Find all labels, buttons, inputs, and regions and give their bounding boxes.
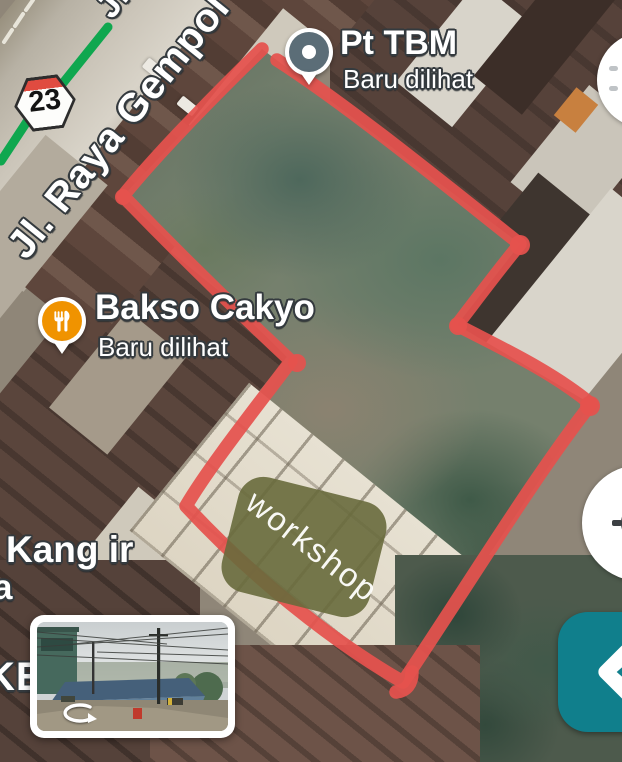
poi-subtitle: Baru dilihat bbox=[343, 66, 473, 93]
map-canvas[interactable]: workshop Jl. Jl. Raya Gempol 23 Pt TBM B… bbox=[0, 0, 622, 762]
poi-subtitle: Baru dilihat bbox=[98, 334, 228, 361]
place-label-kang-ir[interactable]: Kang ir bbox=[6, 531, 133, 570]
directions-button[interactable] bbox=[558, 612, 622, 732]
place-label-partial-a: a bbox=[0, 570, 12, 607]
workshop-label: workshop bbox=[239, 483, 373, 599]
poi-name[interactable]: Pt TBM bbox=[340, 26, 457, 62]
street-view-photo[interactable] bbox=[37, 622, 228, 731]
poi-bakso-cakyo[interactable]: Bakso Cakyo Baru dilihat bbox=[38, 292, 318, 376]
street-view-thumbnail[interactable] bbox=[30, 615, 235, 738]
pan-rotate-icon[interactable] bbox=[57, 700, 99, 726]
poi-name[interactable]: Bakso Cakyo bbox=[95, 290, 315, 327]
my-location-icon bbox=[610, 492, 622, 554]
fork-knife-icon bbox=[49, 308, 75, 334]
route-badge: 23 bbox=[11, 72, 79, 133]
poi-pt-tbm[interactable]: Pt TBM Baru dilihat bbox=[285, 28, 515, 108]
directions-arrow-icon bbox=[595, 639, 622, 704]
